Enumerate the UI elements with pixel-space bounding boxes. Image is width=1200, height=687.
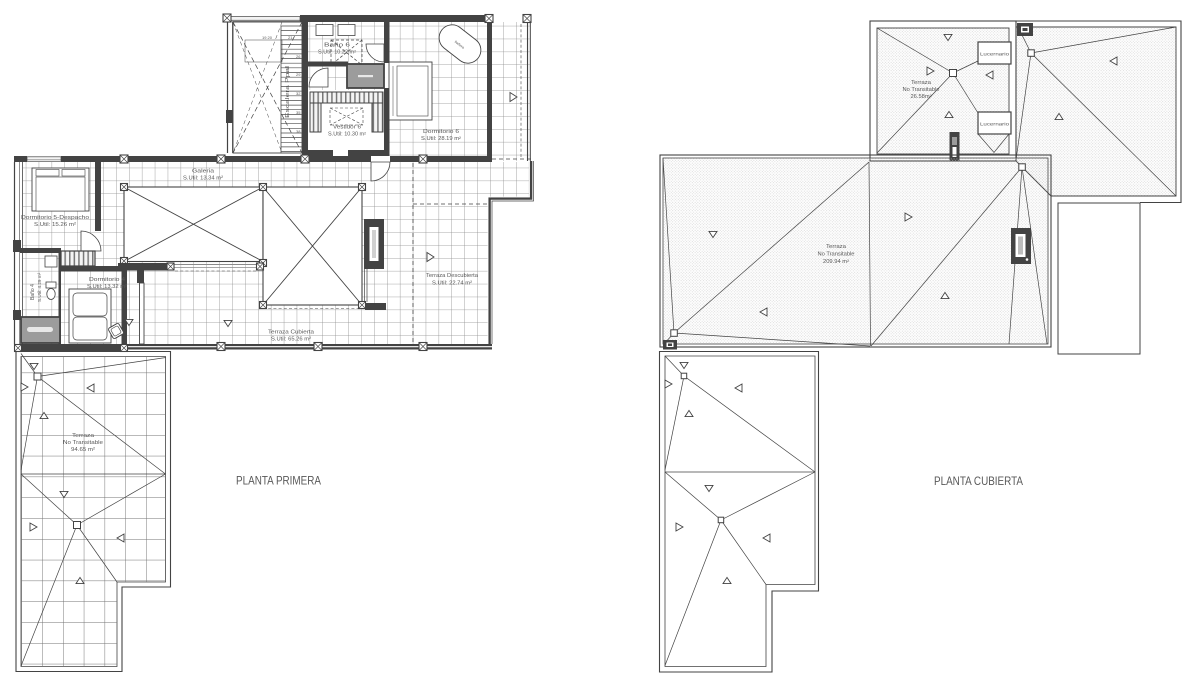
svg-text:No Transitable: No Transitable [818, 252, 855, 258]
svg-text:Terraza Cubierta: Terraza Cubierta [268, 330, 315, 336]
svg-text:S.Util: 15.26 m²: S.Util: 15.26 m² [34, 222, 76, 228]
svg-text:26: 26 [296, 54, 301, 59]
svg-text:35: 35 [296, 110, 301, 115]
svg-text:94.65 m²: 94.65 m² [71, 447, 95, 453]
svg-text:Dormitorio 5-Despacho: Dormitorio 5-Despacho [21, 215, 89, 221]
svg-text:S.Util: 10.30 m²: S.Util: 10.30 m² [328, 132, 366, 138]
svg-text:21: 21 [288, 35, 293, 40]
svg-text:S.Util: 10.22 m²: S.Util: 10.22 m² [318, 50, 356, 56]
svg-text:No Transitable: No Transitable [903, 87, 940, 93]
svg-text:Terraza: Terraza [826, 244, 846, 250]
svg-text:Lucernario: Lucernario [980, 122, 1009, 128]
svg-text:32: 32 [296, 91, 301, 96]
svg-text:Baño 4: Baño 4 [30, 284, 36, 300]
svg-text:Baño 6: Baño 6 [324, 43, 350, 49]
svg-text:Escalera Ppal: Escalera Ppal [285, 66, 291, 118]
svg-text:S.Util: 4.29 m²: S.Util: 4.29 m² [37, 272, 42, 302]
svg-text:S.Util: 28.19 m²: S.Util: 28.19 m² [421, 136, 461, 142]
svg-text:38: 38 [296, 129, 301, 134]
svg-text:Vestidor 6: Vestidor 6 [333, 125, 361, 131]
svg-text:26.58m²: 26.58m² [911, 94, 932, 100]
svg-text:PLANTA CUBIERTA: PLANTA CUBIERTA [934, 476, 1023, 488]
svg-text:Dormitorio 6: Dormitorio 6 [423, 129, 459, 135]
svg-text:S.Util: 13.34 m²: S.Util: 13.34 m² [183, 176, 223, 182]
svg-text:Galeria: Galeria [192, 169, 215, 175]
svg-text:Terraza: Terraza [911, 80, 931, 86]
svg-text:PLANTA PRIMERA: PLANTA PRIMERA [236, 476, 321, 488]
svg-text:19 20: 19 20 [262, 35, 273, 40]
svg-text:No Transitable: No Transitable [63, 440, 103, 446]
svg-text:Terraza: Terraza [72, 433, 94, 439]
svg-text:Dormitorio 4: Dormitorio 4 [89, 277, 125, 283]
svg-text:S.Util: 65.26 m²: S.Util: 65.26 m² [271, 337, 311, 343]
svg-text:S.Util: 22.74 m²: S.Util: 22.74 m² [432, 281, 472, 287]
svg-text:Terraza Descubierta: Terraza Descubierta [426, 273, 479, 279]
svg-text:Lucernario: Lucernario [980, 52, 1009, 58]
svg-text:29: 29 [296, 72, 301, 77]
svg-text:209.94 m²: 209.94 m² [823, 259, 849, 265]
